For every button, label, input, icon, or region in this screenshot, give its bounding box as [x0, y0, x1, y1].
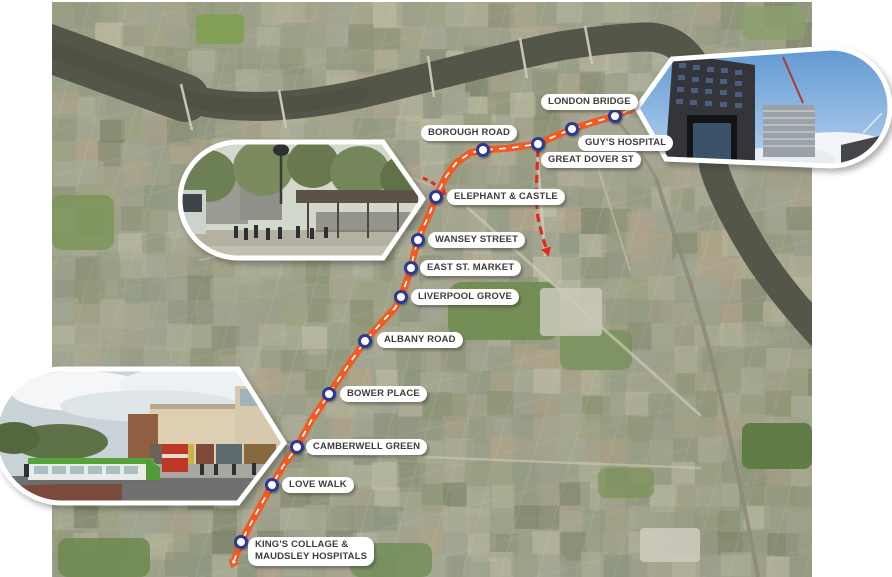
london-bridge-construction-photo	[635, 45, 892, 170]
bus-icon	[162, 444, 188, 472]
inset-london-bridge-photo	[635, 45, 892, 170]
inset-tram-stop-rendering	[178, 138, 428, 262]
inset-tram-street	[0, 366, 290, 506]
tram-icon	[28, 458, 160, 484]
construction-building	[763, 105, 815, 157]
station-canopy	[296, 190, 418, 203]
tram-route-map-figure: LONDON BRIDGEGUY'S HOSPITALGREAT DOVER S…	[0, 0, 892, 577]
